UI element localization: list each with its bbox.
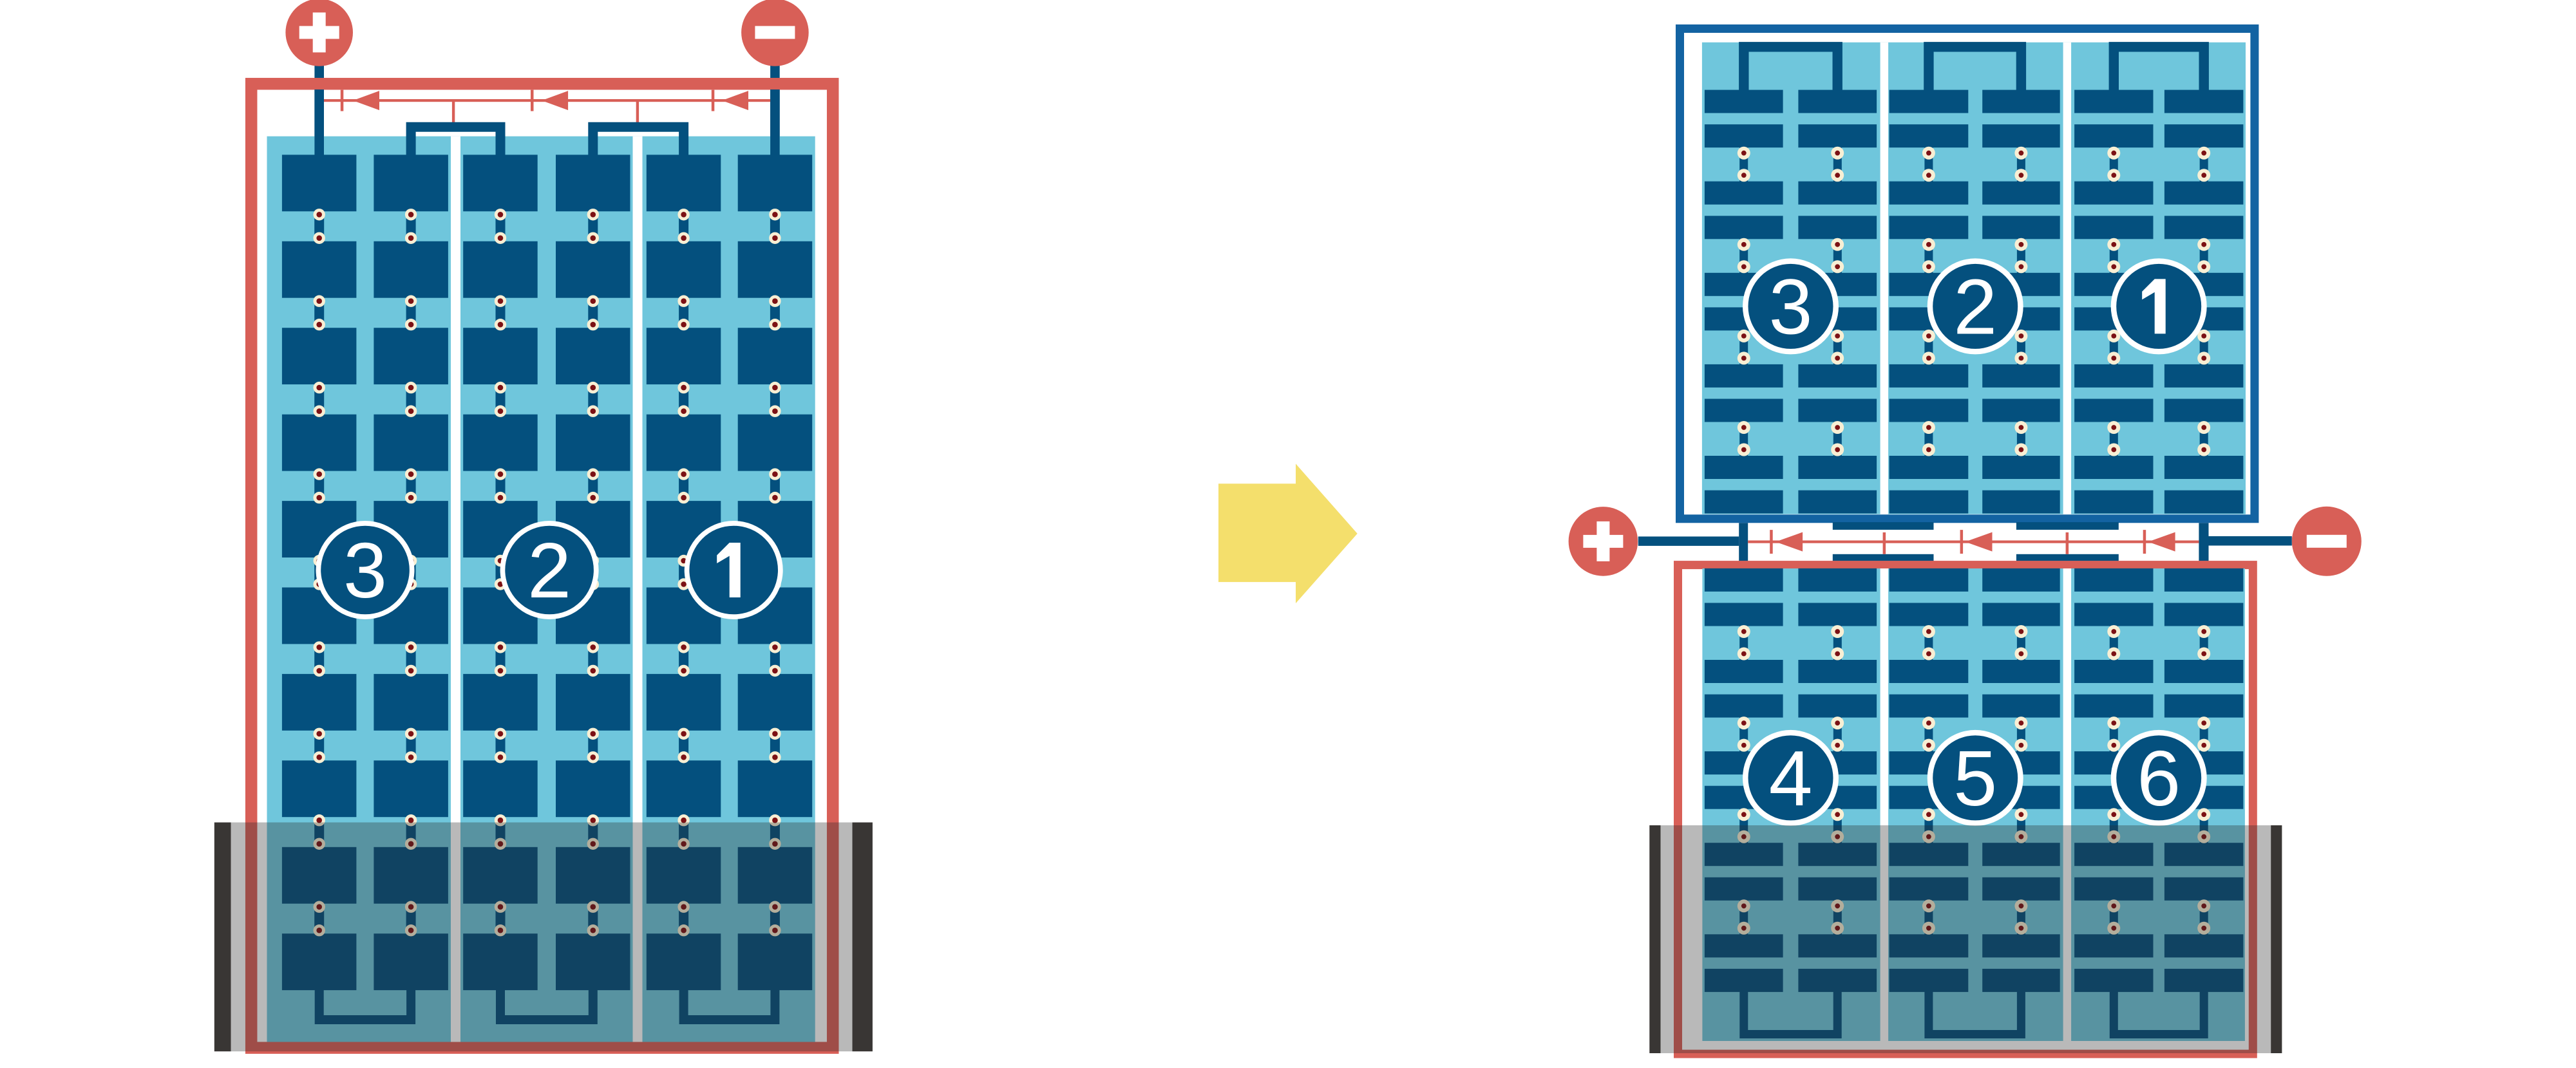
svg-text:4: 4 <box>1769 735 1813 822</box>
svg-text:2: 2 <box>1953 263 1997 351</box>
svg-text:3: 3 <box>343 527 387 614</box>
svg-text:3: 3 <box>1769 263 1813 351</box>
svg-text:5: 5 <box>1953 735 1997 822</box>
svg-text:2: 2 <box>527 527 571 614</box>
svg-text:6: 6 <box>2137 735 2181 822</box>
